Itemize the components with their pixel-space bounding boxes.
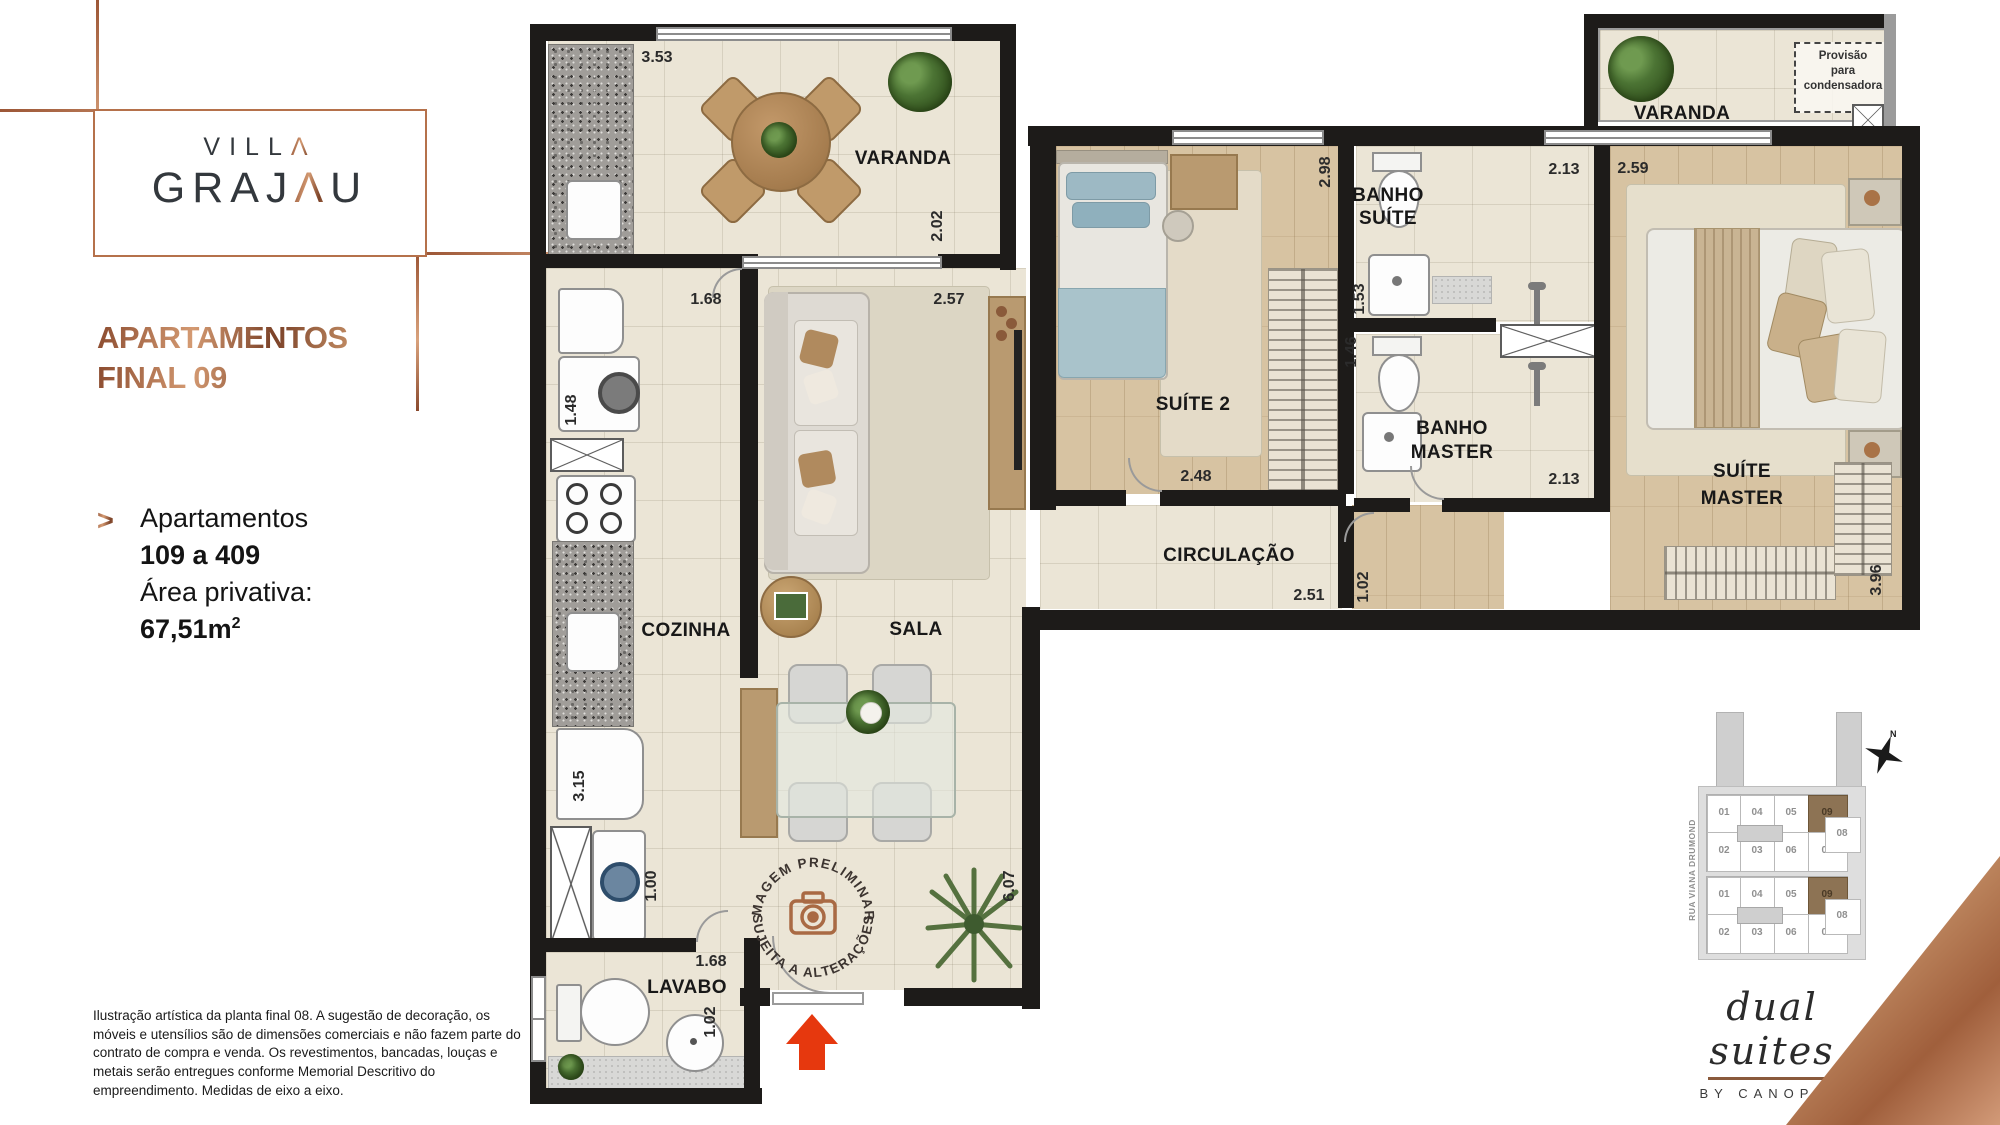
cabinet-crossed-2 <box>550 826 592 942</box>
dim-6.07: 6.07 <box>1001 870 1019 901</box>
dual-suites-underline <box>1708 1077 1836 1080</box>
toilet-lavabo-bowl <box>580 978 650 1046</box>
keyplan-block-2: 01 04 05 09 02 03 06 07 08 <box>1706 876 1848 954</box>
decor-dot-icon <box>1006 318 1017 329</box>
apartment-info: > Apartamentos 109 a 409 Área privativa:… <box>97 500 313 648</box>
banho-suite-mat <box>1432 276 1492 304</box>
dim-1.46: 1.46 <box>1343 336 1361 367</box>
wall-varanda-right-left <box>1584 14 1598 128</box>
wall <box>1442 498 1596 512</box>
wall <box>544 254 742 268</box>
dim-2.48: 2.48 <box>1180 468 1211 486</box>
dim-1.68-cozinha: 1.68 <box>690 291 721 309</box>
keyplan-tower <box>1836 712 1862 792</box>
cooktop-burner-icon <box>600 483 622 505</box>
sink-varanda <box>566 180 622 240</box>
shower-head-icon <box>1528 362 1546 370</box>
table-flowers-white-icon <box>860 702 882 724</box>
shower-column-icon <box>1534 368 1540 406</box>
decor-dot-icon <box>996 330 1007 341</box>
svg-text:IMAGEM PRELIMINAR: IMAGEM PRELIMINAR <box>741 845 877 922</box>
dim-2.13-banho-master: 2.13 <box>1548 471 1579 489</box>
cooktop-burner-icon <box>600 512 622 534</box>
logo-line-1: VILLΛ <box>95 133 425 162</box>
room-label-cozinha: COZINHA <box>641 620 730 642</box>
cooktop-burner-icon <box>566 483 588 505</box>
room-label-varanda-right: VARANDA <box>1634 103 1730 125</box>
cooktop <box>556 475 636 543</box>
wardrobe-suite-master-side <box>1834 462 1892 576</box>
lavabo-plant-icon <box>558 1054 584 1080</box>
room-label-varanda-left: VARANDA <box>855 148 951 170</box>
suite-2-stool <box>1162 210 1194 242</box>
toilet-banho-master-tank <box>1372 336 1422 356</box>
room-label-sala: SALA <box>889 619 942 641</box>
wardrobe-suite-2 <box>1268 268 1338 496</box>
condenser-provision-box: Provisão para condensadora <box>1794 42 1892 113</box>
faucet-icon <box>1392 276 1402 286</box>
tall-appliance <box>556 728 644 820</box>
wall-varanda-right-gray <box>1884 14 1896 126</box>
washer-door-icon <box>600 862 640 902</box>
wall <box>1022 607 1040 1009</box>
keyplan-core <box>1737 907 1783 924</box>
floor-corredor-master <box>1352 505 1504 609</box>
wall-right-outer <box>1902 126 1920 630</box>
dim-1.48: 1.48 <box>563 394 581 425</box>
wall <box>1594 126 1610 512</box>
room-label-suite-2: SUÍTE 2 <box>1156 394 1231 416</box>
side-table-book <box>774 592 808 620</box>
dim-3.15: 3.15 <box>571 770 589 801</box>
chevron-bullet-icon: > <box>97 502 114 542</box>
wall <box>544 938 696 952</box>
cabinet-crossed-1 <box>550 438 624 472</box>
keyplan: 01 04 05 09 02 03 06 07 08 01 04 05 09 <box>1650 705 1910 965</box>
dim-2.51: 2.51 <box>1293 587 1324 605</box>
stamp-text-top: IMAGEM PRELIMINAR <box>741 845 877 922</box>
bed-suite-2-pillow <box>1072 202 1150 228</box>
shower-tray-crossed <box>1500 324 1596 358</box>
sink-cozinha <box>566 612 620 672</box>
wall <box>938 254 1016 268</box>
dim-1.02-circulacao: 1.02 <box>1355 571 1373 602</box>
page-title: APARTAMENTOS FINAL 09 <box>97 318 348 397</box>
shower-head-icon <box>1528 282 1546 290</box>
info-line-apartamentos: Apartamentos <box>140 500 313 537</box>
nightstand-lamp-icon <box>1864 190 1880 206</box>
keyplan-core <box>1737 825 1783 842</box>
villa-grajau-logo: VILLΛ GRAJΛU <box>93 109 427 257</box>
room-label-lavabo: LAVABO <box>647 977 727 999</box>
room-label-circulacao: CIRCULAÇÃO <box>1163 545 1295 567</box>
dim-3.96: 3.96 <box>1868 564 1886 595</box>
wardrobe-suite-master <box>1664 546 1836 600</box>
dim-2.13-banho-suite: 2.13 <box>1548 161 1579 179</box>
keyplan-street-label: RUA VIANA DRUMOND <box>1687 790 1697 950</box>
oven-door-icon <box>598 372 640 414</box>
bed-suite-2-blanket <box>1058 288 1166 378</box>
fridge <box>558 288 624 354</box>
toilet-lavabo <box>556 984 582 1042</box>
shower-column-icon <box>1534 288 1540 326</box>
bed-pillow <box>1820 248 1875 325</box>
info-line-area-label: Área privativa: <box>140 574 313 611</box>
wall-cozinha-sala-divider <box>740 254 758 678</box>
dim-1.02-lavabo: 1.02 <box>702 1006 720 1037</box>
lavabo-sink-drain-icon <box>690 1038 697 1045</box>
dim-2.57: 2.57 <box>933 291 964 309</box>
table-plant-icon <box>761 122 797 158</box>
wall <box>1354 318 1496 332</box>
room-label-banho-master-1: BANHO <box>1416 418 1488 440</box>
dim-2.02: 2.02 <box>929 210 947 241</box>
bed-suite-master-blanket <box>1694 228 1760 428</box>
dim-3.53: 3.53 <box>641 49 672 67</box>
varanda-plant-icon <box>888 52 952 112</box>
wall-bottom-right-wing <box>1040 610 1920 630</box>
room-label-suite-master-2: MASTER <box>1701 488 1784 510</box>
wall <box>530 1088 762 1104</box>
svg-text:N: N <box>1890 729 1897 739</box>
glass-slider-varanda-sala <box>742 256 942 269</box>
info-line-range: 109 a 409 <box>140 537 313 574</box>
camera-icon <box>791 893 835 933</box>
frame-vertical-line-right <box>416 253 419 411</box>
room-label-banho-suite-1: BANHO <box>1352 185 1424 207</box>
logo-line-2: GRAJΛU <box>95 164 425 213</box>
dining-sideboard <box>740 688 778 838</box>
wall <box>1056 490 1126 506</box>
wall-top-right-wing <box>1028 126 1920 146</box>
suite-2-desk <box>1170 154 1238 210</box>
sofa-backrest <box>764 292 788 570</box>
keyplan-tower <box>1716 712 1744 792</box>
toilet-banho-suite-tank <box>1372 152 1422 172</box>
decor-dot-icon <box>996 306 1007 317</box>
wall <box>1160 490 1346 506</box>
dim-2.59: 2.59 <box>1617 160 1648 178</box>
dim-1.68-lavabo: 1.68 <box>695 953 726 971</box>
wall <box>1000 24 1016 270</box>
tv-icon <box>1014 330 1022 470</box>
room-label-suite-master-1: SUÍTE <box>1713 461 1771 483</box>
window-suite-2 <box>1172 130 1324 145</box>
cooktop-burner-icon <box>566 512 588 534</box>
room-label-banho-master-2: MASTER <box>1411 442 1494 464</box>
preliminary-stamp: IMAGEM PRELIMINAR • SUJEITA A ALTERAÇÕES… <box>741 845 885 989</box>
disclaimer-text: Ilustração artística da planta final 08.… <box>93 1007 531 1100</box>
floorplan-page: VILLΛ GRAJΛU APARTAMENTOS FINAL 09 > Apa… <box>0 0 2000 1125</box>
throw-pillow <box>797 449 836 488</box>
dim-1.00: 1.00 <box>643 870 661 901</box>
faucet-icon <box>1384 432 1394 442</box>
bed-suite-2-pillow <box>1066 172 1156 200</box>
dim-2.98: 2.98 <box>1317 156 1335 187</box>
entry-arrow-stem <box>799 1044 825 1070</box>
page-title-line-2: FINAL 09 <box>97 358 348 398</box>
wall <box>904 988 1040 1006</box>
wall-varanda-right-top <box>1584 14 1896 28</box>
info-line-area-value: 67,51m2 <box>140 611 313 648</box>
room-label-banho-suite-2: SUÍTE <box>1359 208 1417 230</box>
glass-slider-suite-master <box>1544 130 1772 145</box>
window-lavabo <box>531 976 546 1062</box>
north-compass-icon: N <box>1862 723 1906 779</box>
entry-door-leaf <box>772 992 864 1005</box>
window-varanda-left <box>656 27 952 41</box>
dim-1.53: 1.53 <box>1351 283 1369 314</box>
nightstand-lamp-icon <box>1864 442 1880 458</box>
varanda-right-plant-icon <box>1608 36 1674 102</box>
bed-pillow <box>1833 328 1887 404</box>
wall <box>1354 498 1410 512</box>
page-title-line-1: APARTAMENTOS <box>97 318 348 358</box>
entry-arrow-icon <box>786 1014 838 1044</box>
keyplan-block-1: 01 04 05 09 02 03 06 07 08 <box>1706 794 1848 872</box>
wall-column <box>1030 126 1056 510</box>
